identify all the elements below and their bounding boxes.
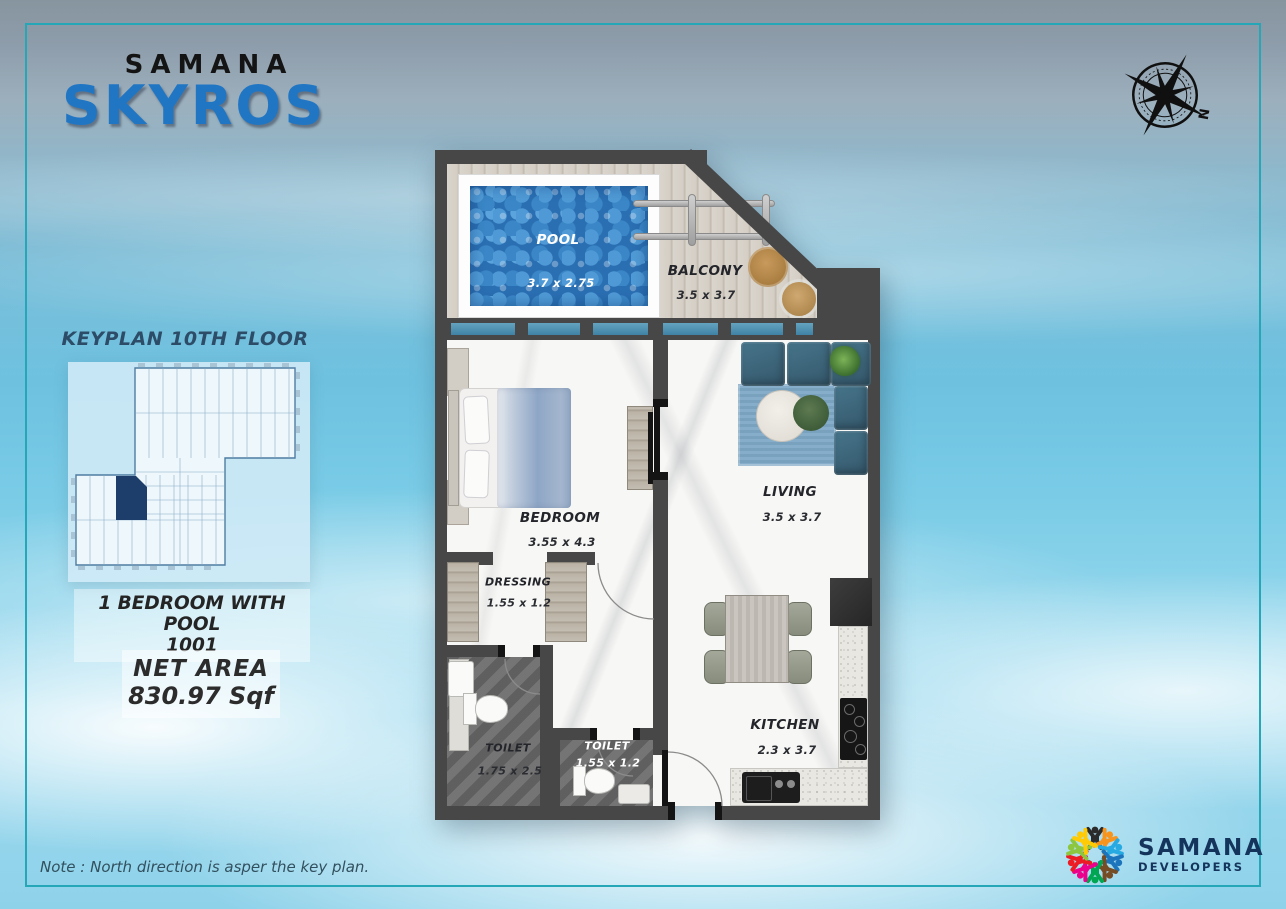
room-label-bedroom: BEDROOM [520, 510, 600, 526]
compass-rose-icon: N [1115, 45, 1215, 145]
room-dims-toilet-guest: 1.55 x 1.2 [576, 757, 640, 770]
north-direction-note: Note : North direction is asper the key … [40, 858, 369, 876]
developer-subtitle: DEVELOPERS [1138, 860, 1265, 874]
room-dims-dressing: 1.55 x 1.2 [487, 597, 551, 610]
compass-icon: N [1115, 45, 1215, 145]
developer-name: SAMANA [1138, 836, 1265, 860]
room-label-toilet-master: TOILET [485, 742, 530, 755]
keyplan-floor-drawing [68, 362, 310, 582]
unit-type: 1 BEDROOM WITH POOL [74, 593, 310, 635]
room-dims-bedroom: 3.55 x 4.3 [528, 535, 595, 549]
net-area-value: 830.97 Sqf [122, 682, 280, 710]
room-dims-balcony: 3.5 x 3.7 [677, 288, 736, 302]
developer-wordmark: SAMANA DEVELOPERS [1138, 836, 1265, 874]
flyer-canvas: SAMANA SKYROS N [0, 0, 1286, 909]
project-logo: SAMANA SKYROS [62, 50, 322, 131]
developer-logo: SAMANA DEVELOPERS [1058, 818, 1265, 892]
room-dims-toilet-master: 1.75 x 2.5 [478, 765, 542, 778]
room-dims-kitchen: 2.3 x 3.7 [758, 743, 817, 757]
keyplan-title: KEYPLAN 10TH FLOOR [60, 328, 310, 350]
room-dims-pool: 3.7 x 2.75 [527, 276, 594, 290]
room-label-pool: POOL [536, 232, 579, 248]
room-label-toilet-guest: TOILET [584, 740, 629, 753]
brand-project-name: SKYROS [62, 80, 322, 131]
compass-north-label: N [1194, 107, 1211, 121]
keyplan-map [68, 362, 310, 582]
developer-people-icon [1058, 818, 1132, 892]
keyplan-unit-highlight [116, 476, 147, 520]
room-label-balcony: BALCONY [668, 263, 743, 279]
room-label-dressing: DRESSING [485, 576, 551, 589]
net-area-box: NET AREA 830.97 Sqf [122, 650, 280, 718]
room-dims-living: 3.5 x 3.7 [763, 510, 822, 524]
room-label-living: LIVING [763, 484, 817, 500]
room-label-kitchen: KITCHEN [750, 717, 819, 733]
net-area-label: NET AREA [122, 656, 280, 682]
floor-plan: POOL 3.7 x 2.75 BALCONY 3.5 x 3.7 BEDROO… [435, 150, 880, 820]
